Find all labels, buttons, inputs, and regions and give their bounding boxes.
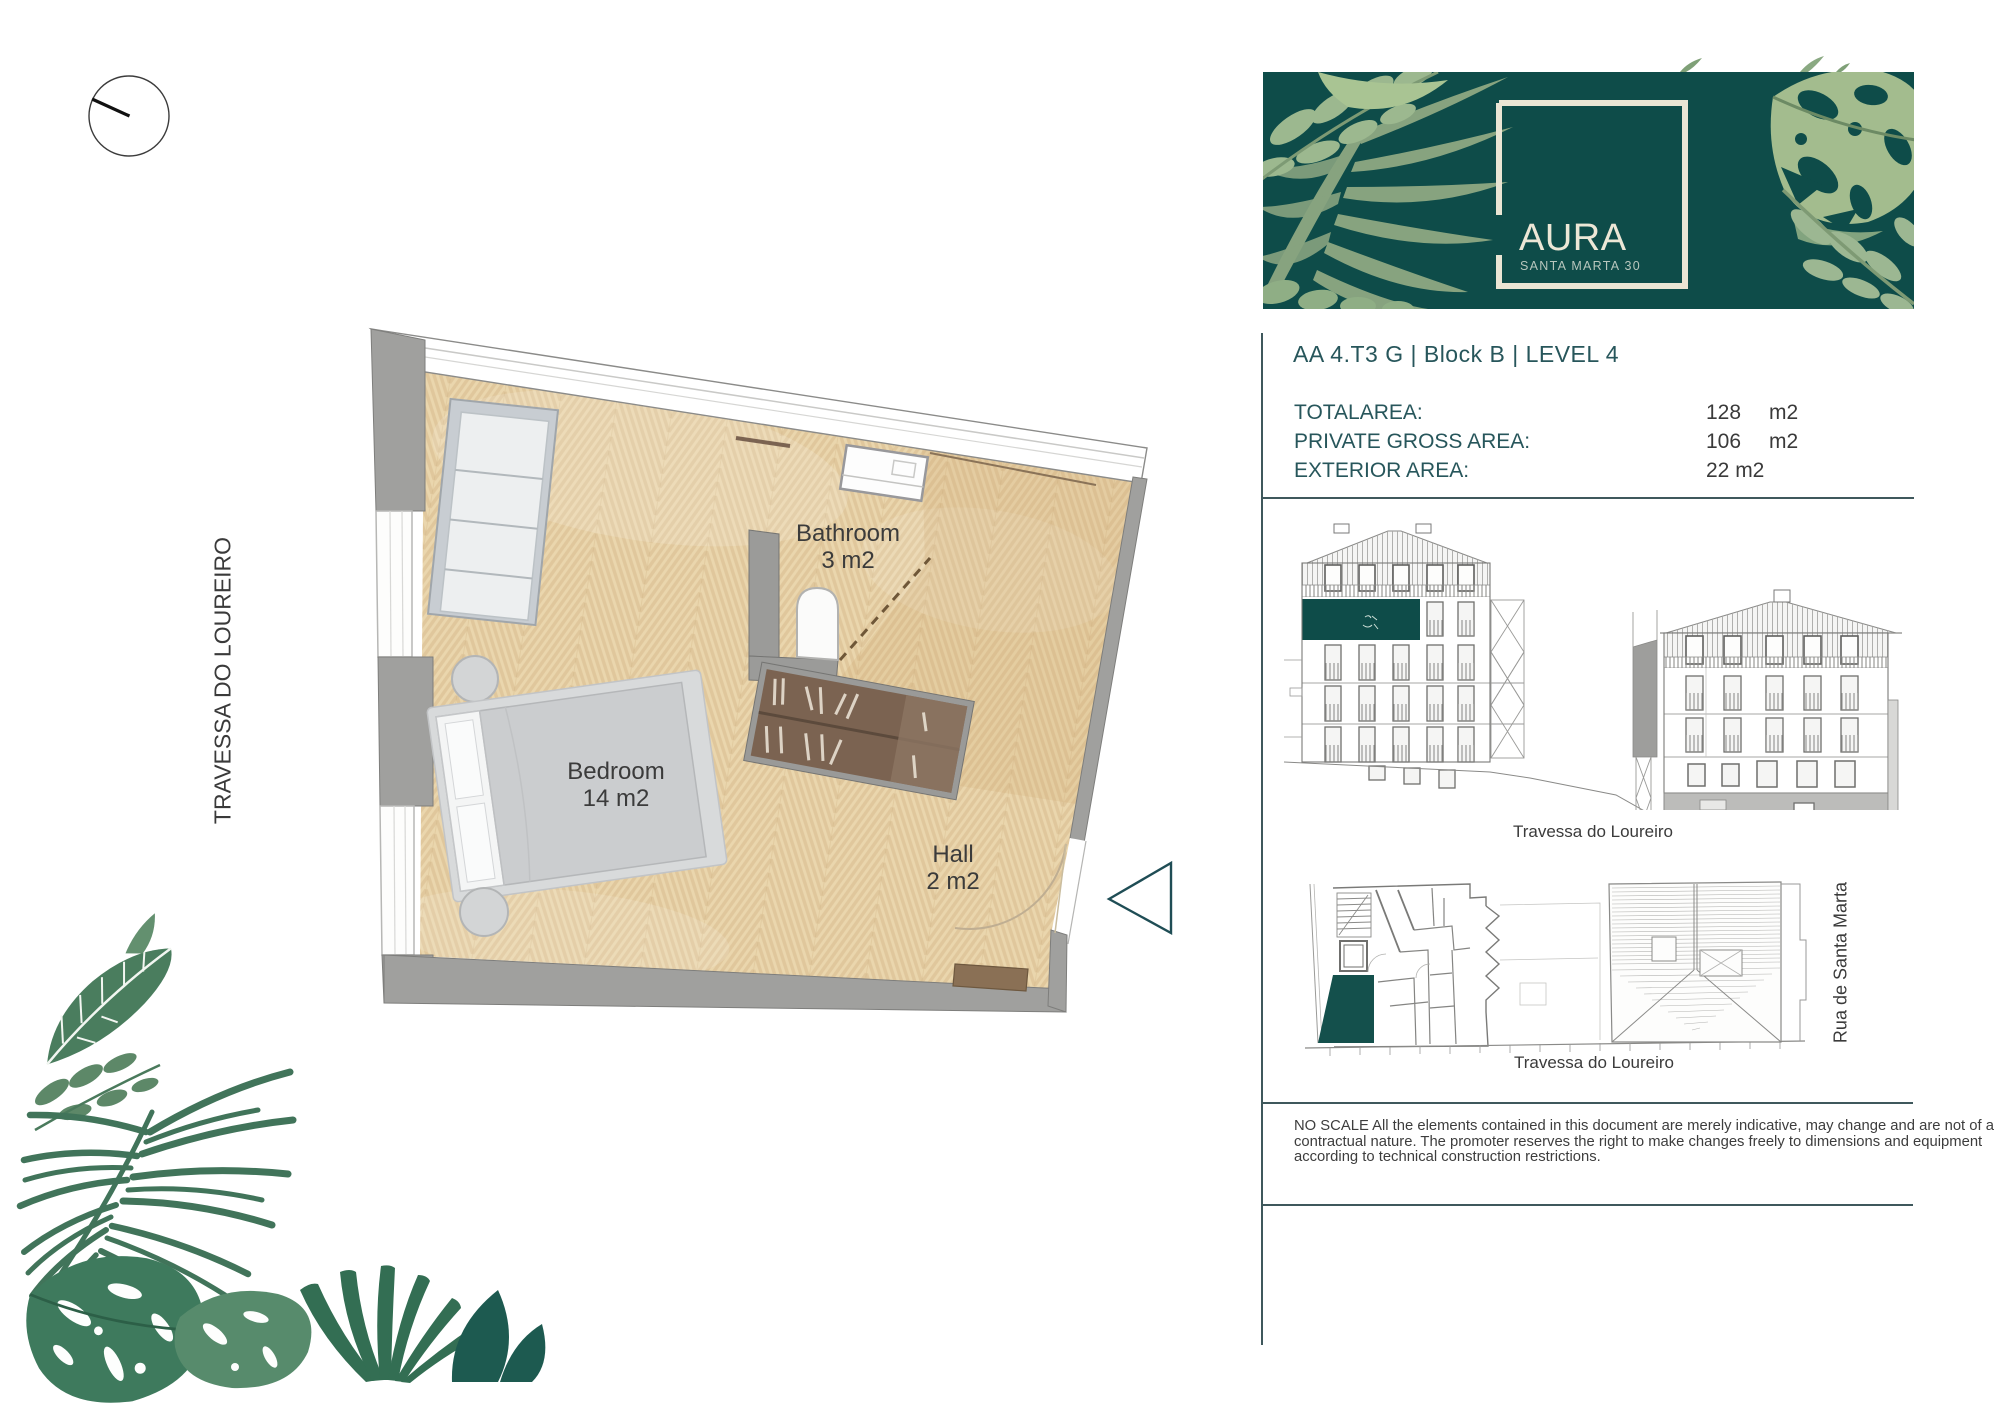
svg-text:AURA: AURA — [1519, 217, 1627, 259]
svg-text:2 m2: 2 m2 — [926, 868, 979, 895]
svg-text:Bathroom: Bathroom — [796, 520, 900, 547]
svg-text:3 m2: 3 m2 — [821, 547, 874, 574]
svg-text:Hall: Hall — [932, 841, 973, 868]
svg-text:SANTA MARTA 30: SANTA MARTA 30 — [1520, 259, 1641, 273]
svg-text:Bedroom: Bedroom — [567, 758, 664, 785]
svg-text:14 m2: 14 m2 — [583, 785, 650, 812]
